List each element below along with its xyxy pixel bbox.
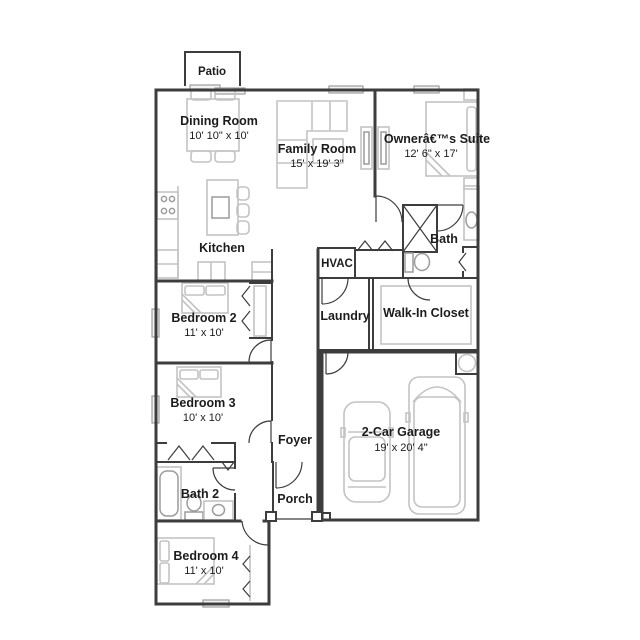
porch-post-icon	[312, 512, 322, 521]
bath-fixtures-icon	[403, 186, 479, 272]
bed3-bed-icon	[177, 367, 221, 397]
garage-dims: 19' x 20' 4"	[374, 442, 427, 454]
bath2-label: Bath 2	[181, 487, 219, 501]
bed2-bed-icon	[182, 283, 228, 313]
porch-post-icon	[266, 512, 276, 521]
bath2-jamb-icon	[222, 462, 234, 470]
bed3-dims: 10' x 10'	[183, 412, 223, 424]
floor-plan-page: Patio Dining Room 10' 10" x 10' Family R…	[0, 0, 640, 640]
dining-label: Dining Room	[180, 114, 258, 128]
hvac-label: HVAC	[321, 258, 353, 270]
hvac-door-icon	[322, 278, 348, 304]
laundry-label: Laundry	[320, 309, 369, 323]
bed2-closet-bifold-icon	[242, 286, 250, 331]
bed4-label: Bedroom 4	[173, 549, 238, 563]
walkin-door-icon	[408, 278, 430, 300]
bed2-dims: 11' x 10'	[184, 327, 223, 339]
room-labels: Patio Dining Room 10' 10" x 10' Family R…	[170, 66, 490, 577]
bed3-door-icon	[249, 421, 271, 443]
foyer-label: Foyer	[278, 433, 312, 447]
bed4-dims: 11' x 10'	[184, 565, 223, 577]
bed2-label: Bedroom 2	[171, 311, 236, 325]
water-heater-icon	[459, 355, 476, 372]
bath-pocket-door-icon	[459, 253, 466, 271]
bed4-closet-bifold-icon	[243, 556, 250, 597]
bed2-closet-panel-icon	[254, 286, 266, 336]
kitchen-fixtures-icon	[157, 180, 272, 282]
owners-dims: 12' 6" x 17'	[404, 148, 457, 160]
family-label: Family Room	[278, 142, 357, 156]
kitchen-label: Kitchen	[199, 241, 245, 255]
front-door-icon	[276, 462, 302, 488]
bed3-label: Bedroom 3	[170, 396, 235, 410]
bath-door-icon	[437, 205, 463, 231]
porch-label: Porch	[277, 492, 312, 506]
garage-entry-door-icon	[326, 352, 348, 374]
dining-dims: 10' 10" x 10'	[189, 130, 248, 142]
bed3-closet-bifold-icon	[168, 446, 214, 460]
walkin-label: Walk-In Closet	[383, 306, 469, 320]
bath-label: Bath	[430, 232, 458, 246]
suite-door-icon	[376, 196, 402, 222]
patio-label: Patio	[198, 66, 226, 78]
garage-label: 2-Car Garage	[362, 425, 441, 439]
family-dims: 15' x 19' 3"	[290, 158, 343, 170]
bed4-door-icon	[242, 521, 268, 545]
bed2-door-icon	[249, 340, 271, 362]
floor-plan: Patio Dining Room 10' 10" x 10' Family R…	[0, 0, 640, 640]
owners-label: Ownerâ€™s Suite	[384, 132, 490, 146]
